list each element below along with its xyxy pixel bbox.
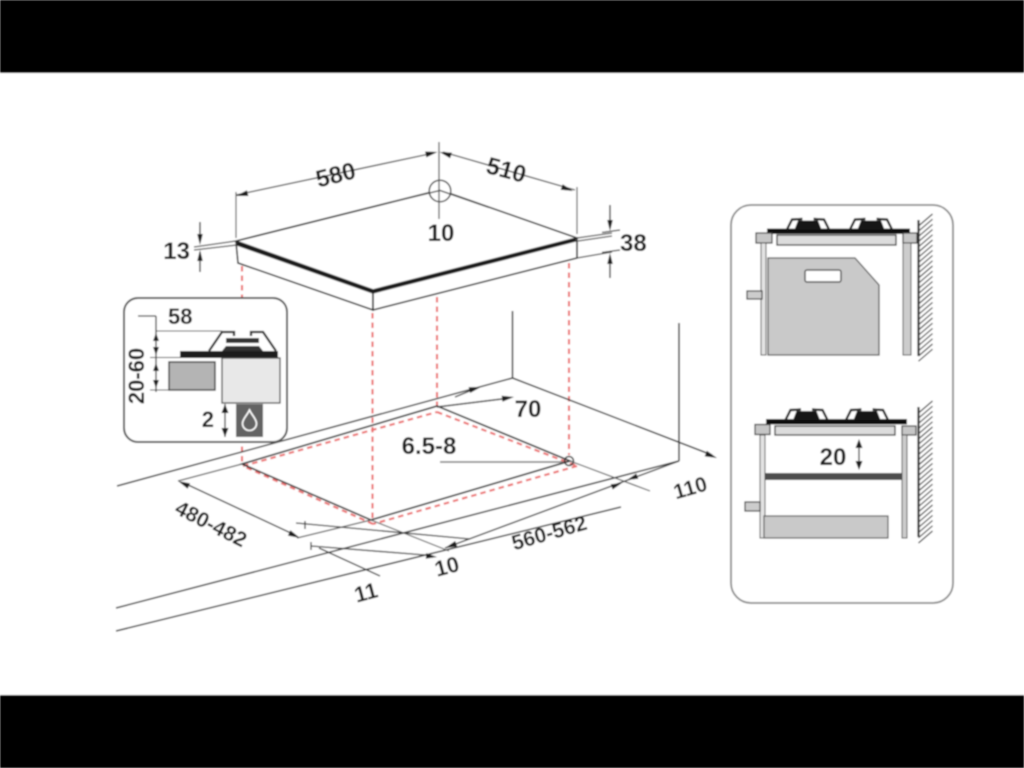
svg-text:13: 13 [163, 238, 190, 265]
svg-text:2: 2 [202, 407, 214, 432]
svg-text:70: 70 [515, 396, 542, 423]
svg-text:20: 20 [820, 444, 847, 471]
svg-text:10: 10 [428, 220, 455, 247]
svg-text:58: 58 [168, 304, 192, 329]
svg-text:38: 38 [620, 230, 647, 257]
svg-text:20-60: 20-60 [124, 348, 149, 404]
svg-text:6.5-8: 6.5-8 [402, 433, 457, 460]
